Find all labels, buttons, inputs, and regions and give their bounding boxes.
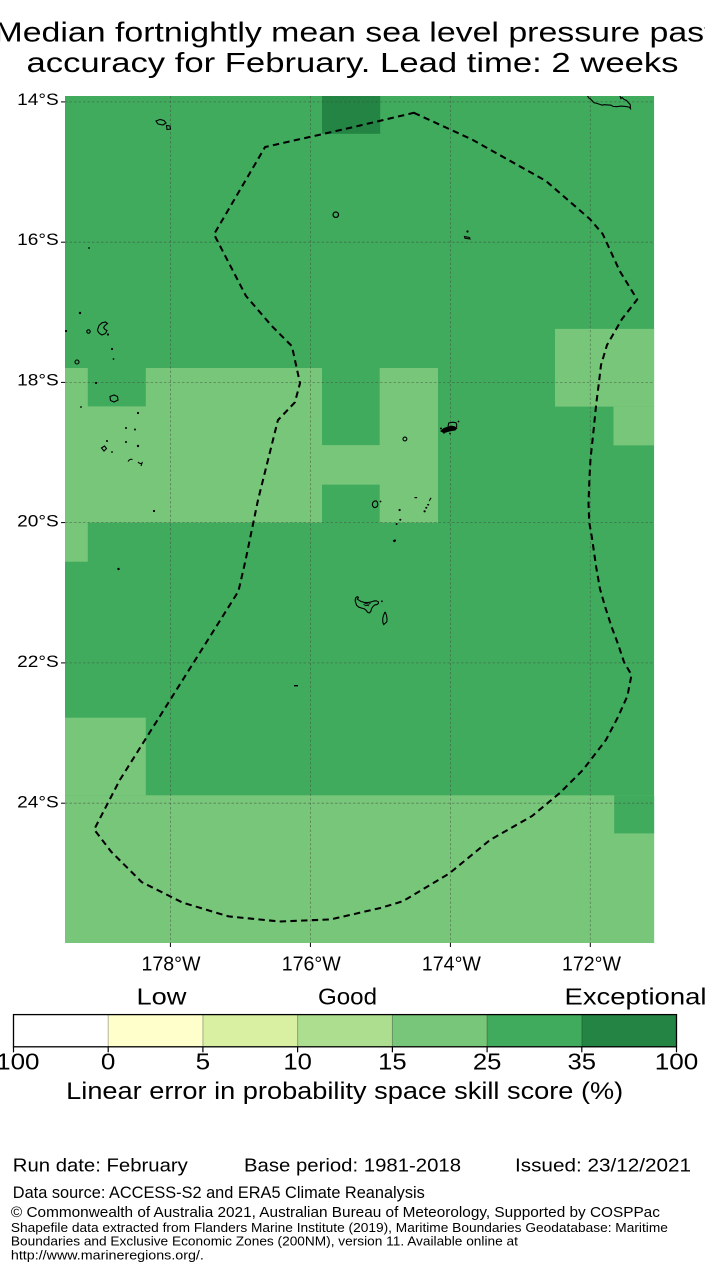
svg-text:174°W: 174°W bbox=[422, 952, 481, 975]
svg-text:Base period: 1981-2018: Base period: 1981-2018 bbox=[244, 1154, 461, 1175]
svg-text:Boundaries and Exclusive Econo: Boundaries and Exclusive Economic Zones … bbox=[11, 1234, 518, 1249]
svg-text:5: 5 bbox=[196, 1049, 211, 1075]
svg-text:176°W: 176°W bbox=[282, 952, 341, 975]
svg-text:18°S: 18°S bbox=[17, 371, 59, 390]
svg-text:100: 100 bbox=[655, 1049, 699, 1075]
svg-text:Linear error in probability sp: Linear error in probability space skill … bbox=[66, 1078, 623, 1105]
svg-text:22°S: 22°S bbox=[17, 652, 59, 671]
svg-text:10: 10 bbox=[283, 1049, 312, 1075]
svg-text:15: 15 bbox=[378, 1049, 407, 1075]
svg-text:Median fortnightly mean sea le: Median fortnightly mean sea level pressu… bbox=[0, 17, 705, 48]
svg-text:25: 25 bbox=[473, 1049, 502, 1075]
svg-text:Issued: 23/12/2021: Issued: 23/12/2021 bbox=[515, 1154, 691, 1175]
svg-text:172°W: 172°W bbox=[562, 952, 621, 975]
svg-text:16°S: 16°S bbox=[17, 230, 59, 249]
svg-text:178°W: 178°W bbox=[142, 952, 201, 975]
svg-text:Good: Good bbox=[318, 984, 377, 1010]
svg-text:14°S: 14°S bbox=[17, 90, 59, 109]
svg-text:35: 35 bbox=[568, 1049, 597, 1075]
svg-text:accuracy for February. Lead ti: accuracy for February. Lead time: 2 week… bbox=[27, 47, 679, 78]
svg-text:Run date: February: Run date: February bbox=[13, 1154, 189, 1175]
svg-text:24°S: 24°S bbox=[17, 793, 59, 812]
svg-text:http://www.marineregions.org/.: http://www.marineregions.org/. bbox=[11, 1248, 204, 1263]
svg-text:© Commonwealth of Australia 20: © Commonwealth of Australia 2021, Austra… bbox=[11, 1205, 660, 1221]
svg-text:-100: -100 bbox=[0, 1049, 40, 1075]
svg-text:Shapefile data extracted from: Shapefile data extracted from Flanders M… bbox=[11, 1220, 668, 1235]
svg-text:0: 0 bbox=[101, 1049, 116, 1075]
svg-text:Low: Low bbox=[137, 984, 187, 1010]
svg-text:Data source: ACCESS-S2 and ERA: Data source: ACCESS-S2 and ERA5 Climate … bbox=[13, 1183, 425, 1202]
svg-text:20°S: 20°S bbox=[17, 511, 59, 530]
svg-text:Exceptional: Exceptional bbox=[565, 984, 705, 1010]
